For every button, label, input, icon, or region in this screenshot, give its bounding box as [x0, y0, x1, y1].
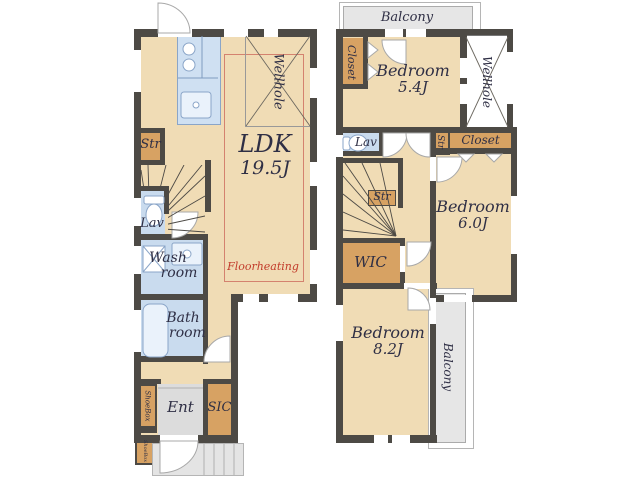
bedroom2-label: Bedroom 6.0J	[434, 198, 512, 231]
door-arc	[383, 133, 407, 157]
wash-room-label: Wash room	[141, 251, 205, 281]
ldk-label: LDK 19.5J	[210, 132, 320, 178]
door-arc	[172, 212, 198, 238]
balcony-top-label: Balcony	[343, 11, 471, 25]
shoebox-small-label: ShoeBox	[135, 437, 155, 465]
door-arc	[160, 441, 198, 473]
shoebox-label: ShoeBox	[137, 384, 157, 428]
door-arc	[406, 133, 430, 157]
door-arc	[437, 157, 462, 182]
closet-door-mark	[368, 42, 378, 58]
bath-room-label: Bath room	[161, 311, 205, 341]
lav-f2-label: Lav	[352, 136, 380, 149]
door-arc	[408, 288, 430, 310]
wellhole-f1-label: Wellhole	[245, 35, 311, 127]
closet-top-label: Closet	[339, 38, 365, 86]
door-arc	[407, 242, 431, 266]
wellhole-f2-label: Wellhole	[464, 35, 510, 129]
plan-symbols-layer	[0, 0, 640, 480]
sic-label: SIC	[206, 401, 233, 415]
str-f1-label: Str	[137, 138, 164, 152]
door-arc	[158, 3, 190, 33]
bedroom1-label: Bedroom 5.4J	[363, 62, 463, 95]
door-arc	[204, 336, 230, 362]
closet-door-mark	[486, 154, 502, 162]
floorheating-label: Floorheating	[224, 261, 302, 273]
balcony-right-label: Balcony	[433, 293, 464, 441]
closet-right-label: Closet	[450, 134, 511, 147]
str-stairs-label: Str	[368, 191, 396, 203]
str-f2-label: Str	[430, 129, 450, 155]
stove-icon	[178, 36, 218, 78]
bedroom3-label: Bedroom 8.2J	[346, 324, 430, 357]
lav-f1-label: Lav	[137, 217, 167, 231]
wic-label: WIC	[341, 254, 400, 270]
kitchen-sink-icon	[181, 92, 211, 118]
floor-plan: LDK 19.5J Floorheating Wellhole Str Lav …	[0, 0, 640, 480]
ent-label: Ent	[158, 399, 203, 415]
